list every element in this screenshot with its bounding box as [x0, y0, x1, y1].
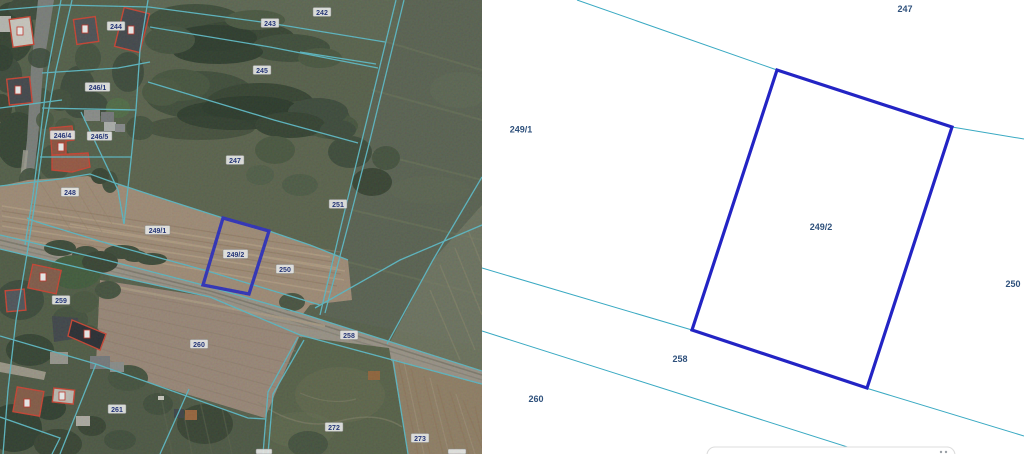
svg-text:249/2: 249/2: [810, 222, 833, 232]
svg-text:260: 260: [528, 394, 543, 404]
svg-text:249/1: 249/1: [510, 125, 533, 135]
svg-text:247: 247: [897, 4, 912, 14]
svg-text:250: 250: [1005, 279, 1020, 289]
svg-text:258: 258: [672, 354, 687, 364]
